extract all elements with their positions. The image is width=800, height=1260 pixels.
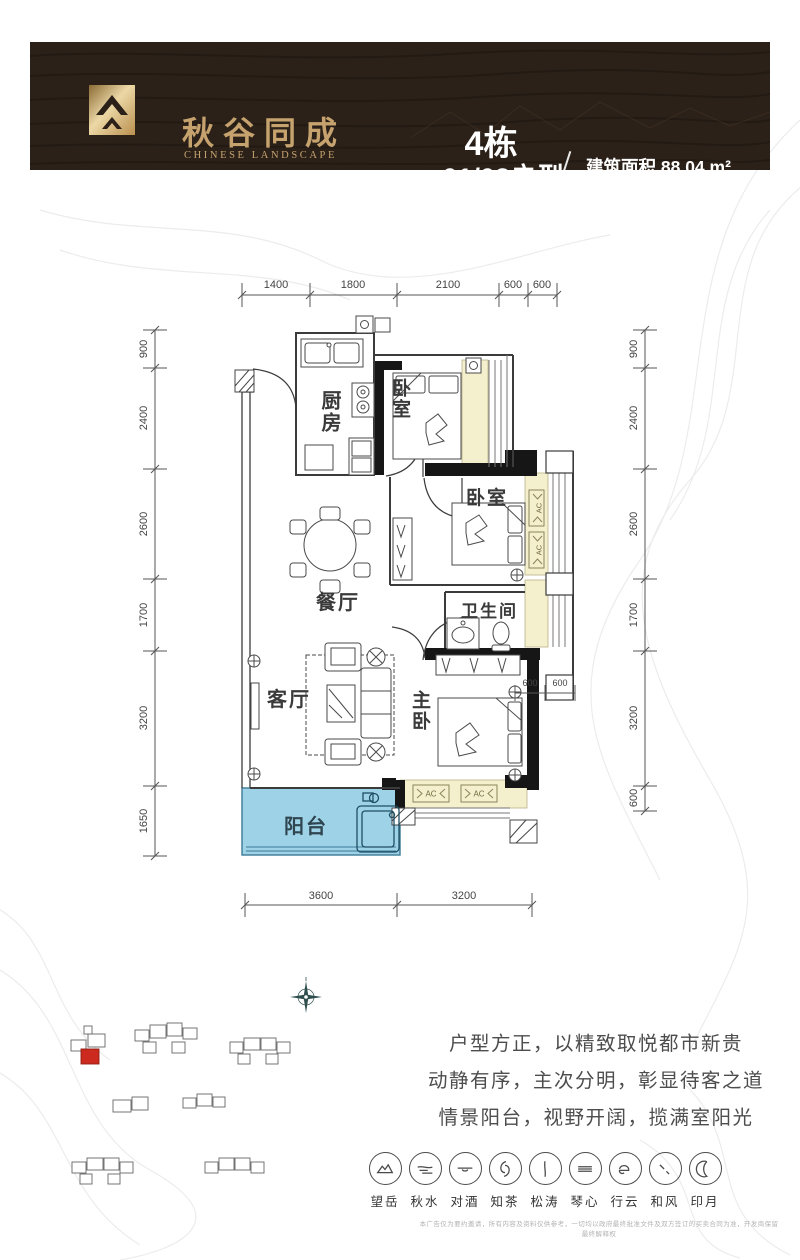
feature-item: 秋水	[406, 1152, 444, 1210]
brand-name-english: CHINESE LANDSCAPE	[184, 150, 337, 161]
building-cluster	[135, 1023, 197, 1053]
building-cluster	[72, 1158, 133, 1184]
dim-right: 2600	[628, 512, 640, 536]
brand-logo	[88, 84, 136, 136]
brand-name-chinese: 秋谷同成	[182, 108, 346, 154]
dining-set	[290, 507, 370, 593]
dim-left: 3200	[138, 706, 150, 730]
feature-label: 知茶	[490, 1191, 519, 1210]
bedroom2-furniture	[393, 503, 525, 581]
dim-right: 900	[628, 340, 640, 358]
mountain-icon	[369, 1152, 402, 1185]
highlighted-building	[81, 1049, 99, 1064]
feature-label: 松涛	[530, 1191, 559, 1210]
room-label-kitchen: 厨房	[315, 390, 344, 434]
feature-icon-row: 望岳 秋水 对酒 知茶 松涛	[366, 1152, 724, 1210]
feature-item: 和风	[646, 1152, 684, 1210]
dim-top: 1400	[264, 279, 288, 291]
room-label-balcony: 阳台	[284, 810, 328, 839]
tea-icon	[489, 1152, 522, 1185]
dim-right: 600	[628, 789, 640, 807]
dim-right: 3200	[628, 706, 640, 730]
wind-icon	[649, 1152, 682, 1185]
building-cluster	[205, 1158, 264, 1173]
feature-item: 琴心	[566, 1152, 604, 1210]
dim-top: 1800	[341, 279, 365, 291]
site-plan	[40, 960, 340, 1230]
room-label-master: 主卧	[406, 690, 433, 732]
ac-label: AC	[473, 790, 484, 799]
moon-icon	[689, 1152, 722, 1185]
room-label-bathroom: 卫生间	[461, 597, 518, 622]
copy-line-2: 动静有序，主次分明，彰显待客之道	[428, 1063, 764, 1100]
dim-bottom: 3600	[309, 890, 333, 902]
dining-table	[304, 519, 356, 571]
room-label-dining: 餐厅	[316, 586, 360, 615]
dim-left: 1650	[138, 809, 150, 833]
feature-item: 对酒	[446, 1152, 484, 1210]
feature-item: 望岳	[366, 1152, 404, 1210]
building-cluster	[183, 1094, 225, 1108]
room-label-bedroom2: 卧室	[466, 483, 508, 510]
header-banner: 秋谷同成 CHINESE LANDSCAPE 4栋 01/02户型 建筑面积 8…	[30, 42, 770, 170]
feature-item: 松涛	[526, 1152, 564, 1210]
dim-top: 600	[533, 279, 551, 291]
tv-cabinet	[251, 683, 259, 729]
cloud-icon	[609, 1152, 642, 1185]
feature-label: 秋水	[410, 1191, 439, 1210]
feature-item: 知茶	[486, 1152, 524, 1210]
pine-icon	[529, 1152, 562, 1185]
legal-disclaimer: 本广告仅为要约邀请，所有内容及资料仅供参考，一切均以政府最终批准文件及双方签订的…	[418, 1218, 780, 1238]
dim-left: 1700	[138, 603, 150, 627]
room-label-living: 客厅	[267, 683, 311, 712]
water-icon	[409, 1152, 442, 1185]
ac-label: AC	[425, 790, 436, 799]
dim-left: 900	[138, 340, 150, 358]
feature-label: 望岳	[370, 1191, 399, 1210]
ac-label: AC	[534, 544, 543, 555]
room-label-bedroom1: 卧室	[386, 378, 413, 420]
feature-label: 印月	[690, 1191, 719, 1210]
dim-right: 1700	[628, 603, 640, 627]
wood-grain-texture	[30, 42, 770, 170]
copy-line-1: 户型方正，以精致取悦都市新贵	[428, 1026, 764, 1063]
dim-top: 600	[504, 279, 522, 291]
feature-item: 行云	[606, 1152, 644, 1210]
sofa	[361, 668, 391, 738]
dim-left: 2400	[138, 406, 150, 430]
fridge	[305, 445, 333, 470]
dim-left: 2600	[138, 512, 150, 536]
dim-inner: 600	[552, 678, 567, 688]
dim-top: 2100	[436, 279, 460, 291]
dim-bottom: 3200	[452, 890, 476, 902]
toilet	[493, 622, 509, 644]
master-bedroom-furniture	[436, 655, 522, 781]
wine-icon	[449, 1152, 482, 1185]
floorplan-poster: 秋谷同成 CHINESE LANDSCAPE 4栋 01/02户型 建筑面积 8…	[0, 0, 800, 1260]
unit-type: 01/02户型	[398, 156, 564, 170]
ac-label: AC	[534, 502, 543, 513]
zither-icon	[569, 1152, 602, 1185]
feature-item: 印月	[686, 1152, 724, 1210]
building-cluster	[113, 1097, 148, 1112]
area-and-layout: 建筑面积 88.04 m² 三房两厅一卫	[586, 154, 731, 170]
feature-label: 琴心	[570, 1191, 599, 1210]
feature-label: 行云	[610, 1191, 639, 1210]
floor-plan: AC AC AC AC	[130, 255, 700, 935]
bathroom-fixtures	[447, 618, 510, 651]
building-cluster	[230, 1038, 290, 1064]
feature-label: 对酒	[450, 1191, 479, 1210]
built-area: 建筑面积 88.04 m²	[586, 154, 731, 170]
wardrobe	[393, 518, 412, 580]
compass-rose	[290, 977, 322, 1013]
marketing-copy: 户型方正，以精致取悦都市新贵 动静有序，主次分明，彰显待客之道 情景阳台，视野开…	[428, 1026, 764, 1137]
copy-line-3: 情景阳台，视野开阔，揽满室阳光	[428, 1100, 764, 1137]
dim-inner: 600	[522, 678, 537, 688]
dim-right: 2400	[628, 406, 640, 430]
building-cluster	[71, 1026, 105, 1051]
feature-label: 和风	[650, 1191, 679, 1210]
